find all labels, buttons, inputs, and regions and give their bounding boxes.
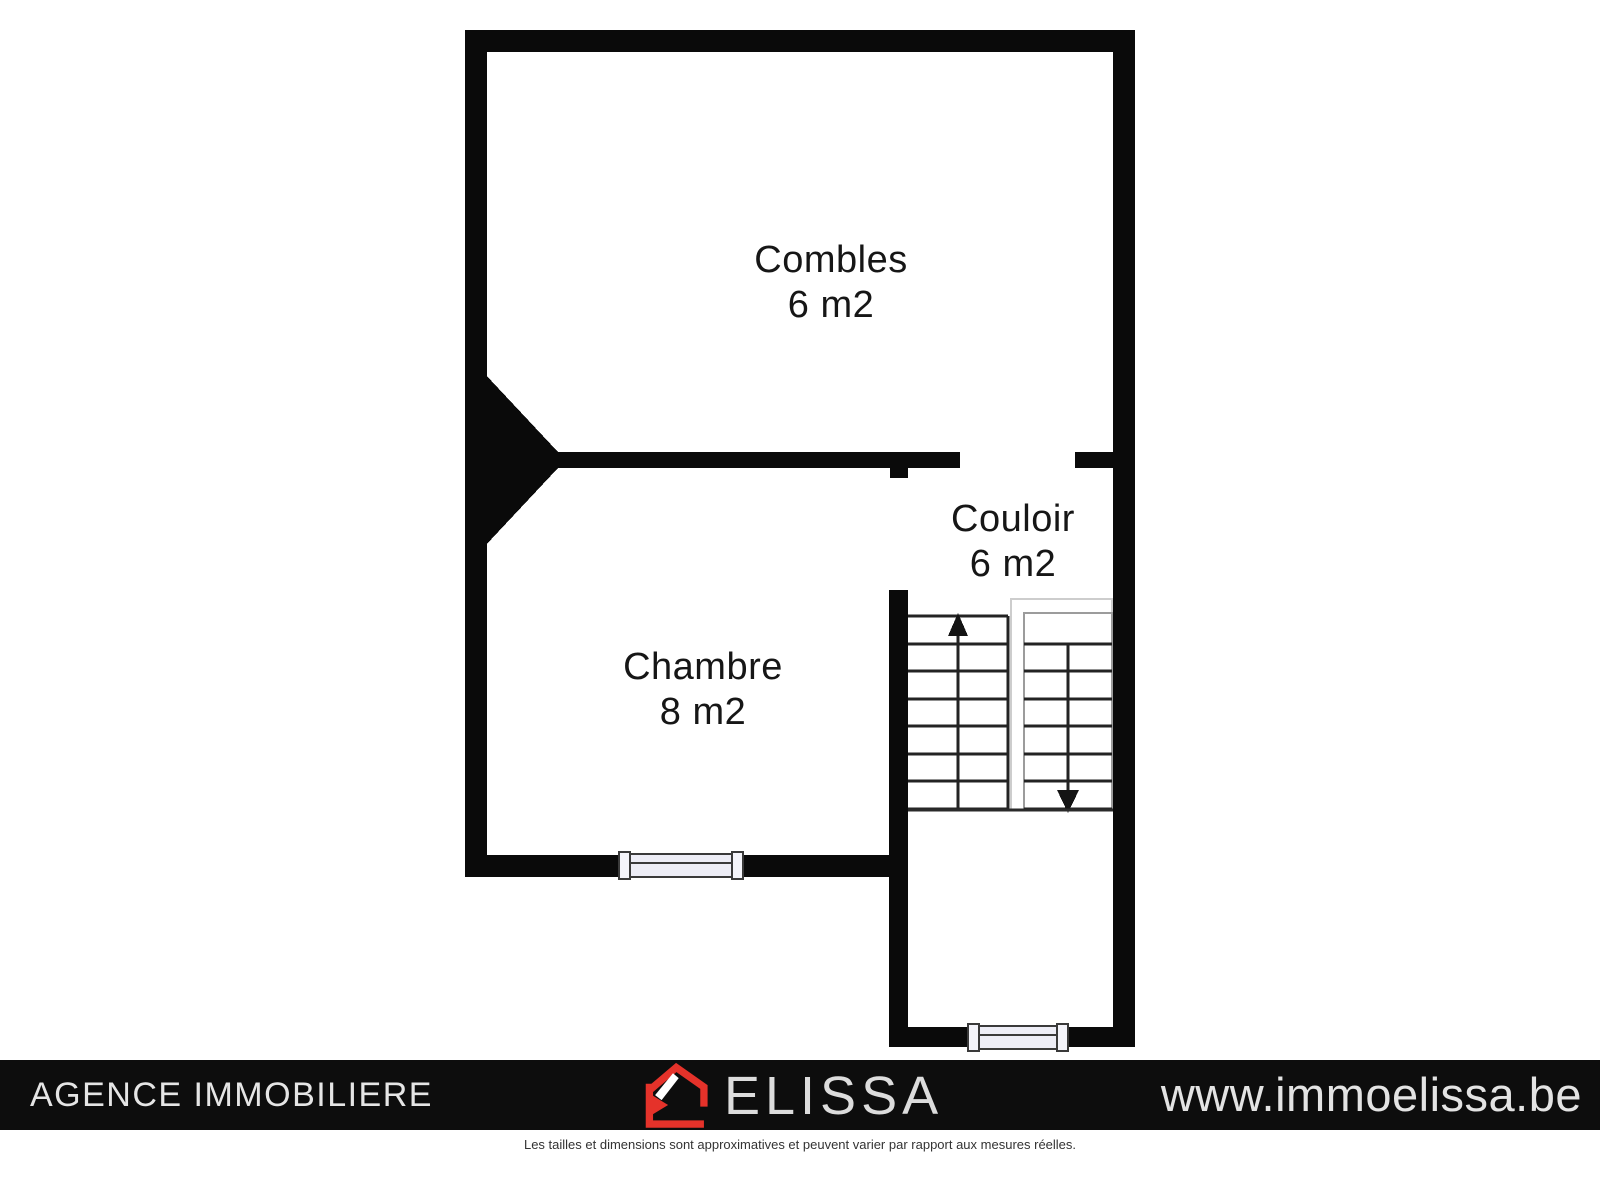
stairs-down-run xyxy=(1024,644,1112,809)
wall-divider-combles-right xyxy=(1075,452,1135,468)
extension-window xyxy=(968,1024,1068,1051)
floorplan-page: Combles 6 m2 Chambre 8 m2 Couloir 6 m2 A… xyxy=(0,0,1600,1200)
disclaimer-text: Les tailles et dimensions sont approxima… xyxy=(0,1137,1600,1152)
extension-window-cap-right xyxy=(1057,1024,1068,1051)
wall-couloir-stub xyxy=(890,452,908,478)
wall-top xyxy=(465,30,1135,52)
chambre-window-body xyxy=(630,854,732,877)
chambre-window-cap-left xyxy=(619,852,630,879)
landing-outline-outer xyxy=(1011,599,1112,810)
website-url: www.immoelissa.be xyxy=(1161,1060,1582,1130)
room-area-combles: 6 m2 xyxy=(754,283,907,328)
floorplan-drawing xyxy=(0,0,1600,1200)
room-label-couloir: Couloir 6 m2 xyxy=(951,497,1075,587)
stair-landing-outlines xyxy=(1011,599,1112,810)
stairs-up-run xyxy=(908,616,1008,809)
stairs-up-treads xyxy=(908,616,1008,809)
wall-chambre-couloir xyxy=(889,590,908,1047)
brand-name: ELISSA xyxy=(724,1060,943,1130)
elissa-house-logo-icon xyxy=(632,1061,714,1131)
agency-footer-bar: AGENCE IMMOBILIERE ELISSA www.immoelissa… xyxy=(0,1060,1600,1130)
wall-left xyxy=(465,30,487,877)
room-name-couloir: Couloir xyxy=(951,497,1075,542)
chambre-window xyxy=(619,852,743,879)
extension-window-body xyxy=(979,1026,1057,1049)
room-label-combles: Combles 6 m2 xyxy=(754,238,907,328)
extension-window-cap-left xyxy=(968,1024,979,1051)
room-label-chambre: Chambre 8 m2 xyxy=(623,645,783,735)
stairs-down-treads xyxy=(1024,644,1112,809)
wall-right xyxy=(1113,30,1135,1047)
room-area-couloir: 6 m2 xyxy=(951,542,1075,587)
room-name-chambre: Chambre xyxy=(623,645,783,690)
room-area-chambre: 8 m2 xyxy=(623,690,783,735)
agency-label: AGENCE IMMOBILIERE xyxy=(30,1060,433,1130)
chambre-window-cap-right xyxy=(732,852,743,879)
room-name-combles: Combles xyxy=(754,238,907,283)
wall-sloped-wedge xyxy=(484,373,558,547)
